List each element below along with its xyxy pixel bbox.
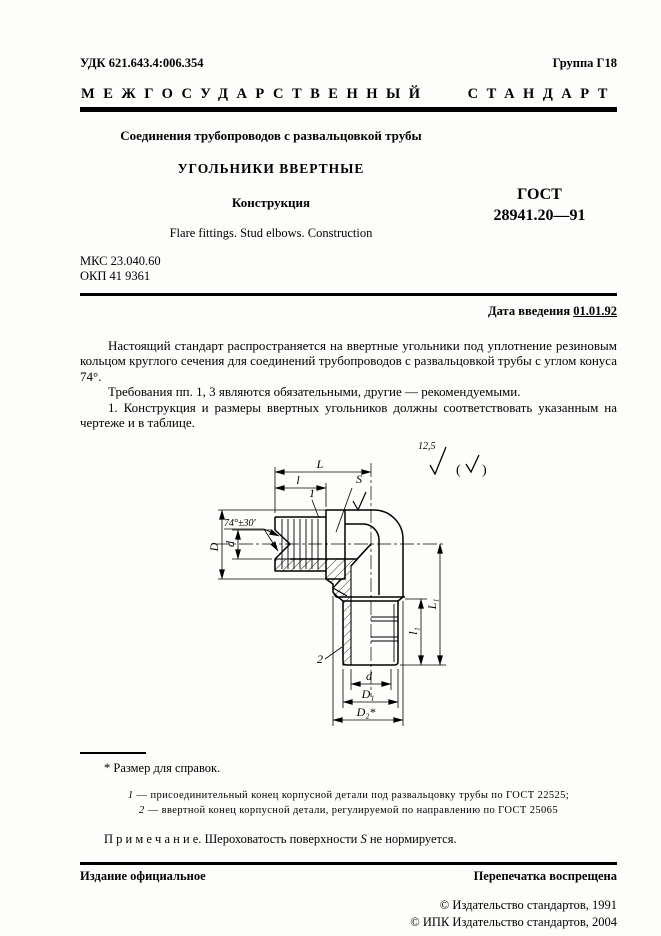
roughness-paren-close: ) <box>482 463 487 478</box>
legend-item-1-num: 1 <box>128 790 134 801</box>
standard-subject: Соединения трубопроводов с развальцовкой… <box>80 128 462 144</box>
reprint-prohibited-label: Перепечатка воспрещена <box>474 869 617 884</box>
footer-row: Издание официальное Перепечатка воспреще… <box>80 869 617 884</box>
ref-label-1: 1 <box>309 486 315 500</box>
note-label: П р и м е ч а н и е. <box>104 832 201 846</box>
dimension-L1: L₁ <box>400 544 446 665</box>
note-text-post: не нормируется. <box>370 832 457 846</box>
classification-codes: МКС 23.040.60 ОКП 41 9361 <box>80 254 617 284</box>
copyright-block: © Издательство стандартов, 1991 © ИПК Из… <box>80 897 617 931</box>
dim-label-d-left: d <box>223 540 237 547</box>
paragraph-scope: Настоящий стандарт распространяется на в… <box>80 338 617 385</box>
drawing-legend: 1 — присоединительный конец корпусной де… <box>80 788 617 820</box>
roughness-note: 12,5 ( ) <box>418 441 487 478</box>
date-value: 01.01.92 <box>573 304 617 318</box>
dimension-l: l <box>275 473 326 507</box>
header-rule <box>80 107 617 112</box>
ref-label-2: 2 <box>317 652 323 666</box>
document-header-row: УДК 621.643.4:006.354 Группа Г18 <box>80 56 617 71</box>
gost-document-page: УДК 621.643.4:006.354 Группа Г18 МЕЖГОСУ… <box>0 0 661 936</box>
note-text-pre: Шероховатость поверхности <box>205 832 358 846</box>
legend-item-2: 2 — ввертной конец корпусной детали, рег… <box>80 803 617 819</box>
legend-item-1-text: — присоединительный конец корпусной дета… <box>137 790 570 801</box>
copyright-2004: © ИПК Издательство стандартов, 2004 <box>80 914 617 931</box>
dim-label-l: l <box>296 473 300 487</box>
group-code: Группа Г18 <box>553 56 617 71</box>
copyright-1991: © Издательство стандартов, 1991 <box>80 897 617 914</box>
dim-label-D: D <box>208 542 221 552</box>
footnote-separator <box>80 752 146 754</box>
dimension-l1: l₁ <box>405 599 427 665</box>
dim-label-D2: D₂* <box>356 705 376 719</box>
gost-designation: ГОСТ 28941.20—91 <box>462 128 617 241</box>
dim-label-angle: 74°±30′ <box>224 518 256 529</box>
introduction-date-row: Дата введения 01.01.92 <box>80 304 617 319</box>
gost-label: ГОСТ <box>462 185 617 206</box>
standard-subtitle: Конструкция <box>80 195 462 211</box>
official-edition-label: Издание официальное <box>80 869 206 884</box>
standard-title-english: Flare fittings. Stud elbows. Constructio… <box>80 226 462 241</box>
note-line: П р и м е ч а н и е. Шероховатость повер… <box>80 832 617 847</box>
technical-drawing: L l S 1 74°±30′ <box>208 433 617 748</box>
dim-label-l1: l₁ <box>406 627 420 635</box>
footer-rule <box>80 862 617 865</box>
elbow-fitting-drawing: L l S 1 74°±30′ <box>208 433 568 743</box>
ref-callout-2: 2 <box>317 647 342 666</box>
gost-number: 28941.20—91 <box>462 206 617 227</box>
surface-S-callout: S <box>336 472 362 532</box>
dim-label-L1: L₁ <box>425 598 439 610</box>
dimension-d-left: d <box>223 530 272 559</box>
dim-label-D1: D₁ <box>361 687 375 701</box>
paragraph-requirements: Требования пп. 1, 3 являются обязательны… <box>80 384 617 400</box>
standard-type-title: МЕЖГОСУДАРСТВЕННЫЙ СТАНДАРТ <box>80 86 617 103</box>
note-variable-S: S <box>360 832 366 846</box>
roughness-paren-open: ( <box>456 463 461 478</box>
standard-main-title: УГОЛЬНИКИ ВВЕРТНЫЕ <box>80 161 462 177</box>
legend-item-2-num: 2 <box>139 805 145 816</box>
reference-footnote: * Размер для справок. <box>80 761 617 776</box>
legend-item-1: 1 — присоединительный конец корпусной де… <box>80 788 617 804</box>
udc-code: УДК 621.643.4:006.354 <box>80 56 204 71</box>
ref-callout-1: 1 <box>309 486 319 518</box>
mid-rule <box>80 293 617 296</box>
title-block: Соединения трубопроводов с развальцовкой… <box>80 128 617 241</box>
dim-label-S: S <box>356 472 362 486</box>
legend-item-2-text: — ввертной конец корпусной детали, регул… <box>148 805 558 816</box>
roughness-value: 12,5 <box>418 441 436 452</box>
mks-code: МКС 23.040.60 <box>80 254 617 269</box>
dim-label-L: L <box>316 457 324 471</box>
title-left-column: Соединения трубопроводов с развальцовкой… <box>80 128 462 241</box>
paragraph-construction: 1. Конструкция и размеры ввертных угольн… <box>80 400 617 431</box>
body-paragraphs: Настоящий стандарт распространяется на в… <box>80 338 617 431</box>
okp-code: ОКП 41 9361 <box>80 269 617 284</box>
date-label: Дата введения <box>488 304 570 318</box>
dim-label-d-bottom: d <box>366 669 373 683</box>
